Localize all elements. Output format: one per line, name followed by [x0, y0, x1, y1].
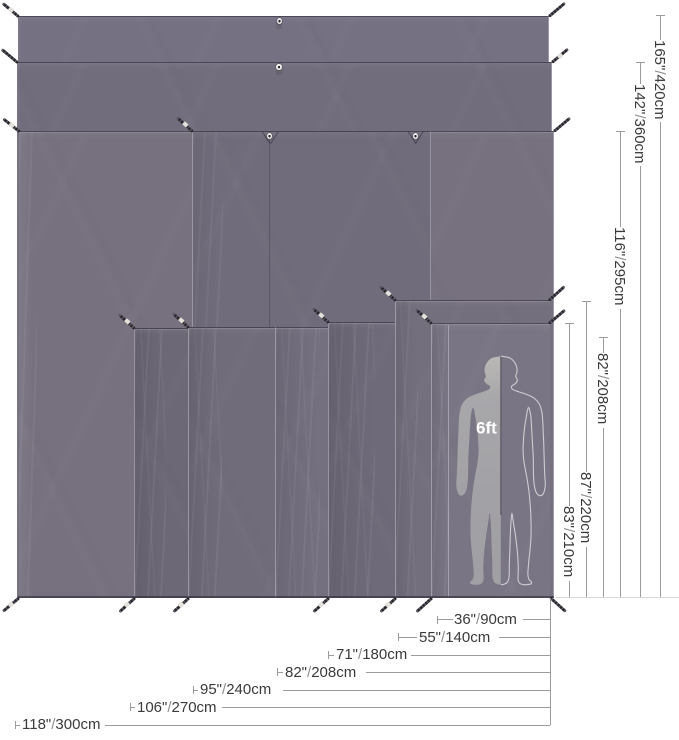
svg-text:6ft: 6ft: [476, 419, 497, 438]
